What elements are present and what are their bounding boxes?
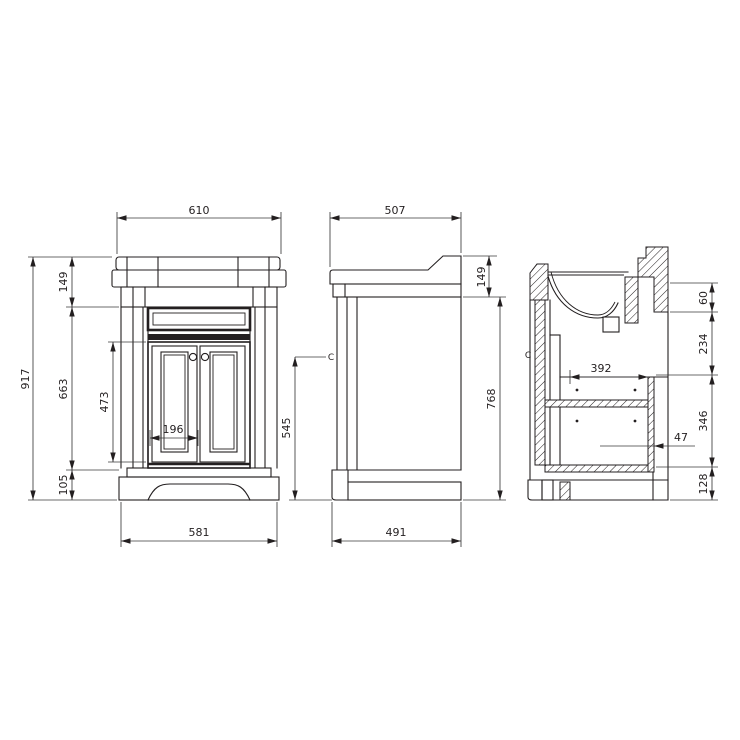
front-worktop — [112, 257, 286, 307]
dim-label-473: 473 — [98, 392, 111, 413]
front-view: 610 917 149 663 105 473 19 — [19, 204, 286, 547]
door-knob-right — [201, 353, 208, 360]
basin-front-rim — [530, 264, 548, 300]
side-centerline: C — [295, 353, 334, 363]
side-worktop — [330, 256, 461, 297]
dim-label-545: 545 — [280, 418, 293, 439]
dim-label-392: 392 — [591, 362, 612, 375]
front-worktop-molding — [112, 270, 286, 287]
front-door-panel-right — [210, 352, 237, 452]
dim-side-worktop: 149 — [463, 256, 506, 297]
front-plinth-arch — [148, 484, 250, 500]
dim-side-centerline-height: 545 — [280, 357, 332, 500]
section-view: C 392 47 60 234 346 128 — [525, 247, 718, 500]
front-worktop-apron — [121, 287, 277, 307]
dim-section-interior-width: 392 — [570, 362, 648, 384]
side-body — [337, 297, 461, 470]
dim-label-581: 581 — [189, 526, 210, 539]
dim-label-149-side: 149 — [475, 267, 488, 288]
section-centerline-label: C — [525, 351, 531, 361]
door-knob-left — [189, 353, 196, 360]
dim-label-768: 768 — [485, 389, 498, 410]
dim-label-149-front: 149 — [57, 272, 70, 293]
dim-label-60: 60 — [697, 291, 710, 305]
section-shelf-top — [545, 400, 648, 407]
dim-label-234: 234 — [697, 334, 710, 355]
front-worktop-slab — [116, 257, 280, 270]
dim-label-196: 196 — [163, 423, 184, 436]
dim-label-917: 917 — [19, 369, 32, 390]
dim-label-346: 346 — [697, 411, 710, 432]
dim-section-chain: 60 234 346 128 — [656, 283, 718, 500]
dim-front-door-panel: 196 — [150, 423, 198, 446]
side-view: C 507 149 768 545 491 — [280, 204, 506, 547]
front-door-left — [152, 346, 197, 462]
section-plinth-board — [560, 482, 570, 500]
vanity-technical-drawing: 610 917 149 663 105 473 19 — [0, 0, 740, 740]
fixing-dot — [576, 389, 579, 392]
section-basin — [530, 247, 668, 332]
dim-label-105: 105 — [57, 475, 70, 496]
dim-label-491: 491 — [386, 526, 407, 539]
dim-label-663: 663 — [57, 379, 70, 400]
dim-front-doors: 473 — [98, 342, 146, 462]
front-door-panel-left — [161, 352, 188, 452]
drawing-canvas: 610 917 149 663 105 473 19 — [0, 0, 740, 740]
front-drawer — [148, 308, 250, 340]
front-drawer-panel — [153, 313, 245, 325]
dim-label-47: 47 — [674, 431, 688, 444]
basin-tap-deck-upstand — [638, 247, 668, 312]
front-plinth-base — [119, 477, 279, 500]
side-worktop-molding — [333, 284, 461, 297]
front-door-frame — [148, 342, 250, 468]
section-shelf-bottom — [545, 465, 648, 472]
dim-label-128: 128 — [697, 474, 710, 495]
side-plinth-foot — [332, 470, 348, 500]
fixing-dot — [576, 420, 579, 423]
side-centerline-label: C — [328, 353, 334, 363]
fixing-dot — [634, 389, 637, 392]
section-carcass — [530, 300, 668, 500]
section-plinth-foot — [528, 480, 542, 500]
dim-front-width-top: 610 — [117, 204, 281, 254]
front-plinth — [119, 468, 279, 500]
section-centerline: C — [525, 351, 531, 361]
front-door-right — [200, 346, 245, 462]
fixing-dot — [634, 420, 637, 423]
front-mid-rail — [148, 334, 250, 340]
section-plinth — [528, 472, 668, 500]
basin-waste-outlet — [603, 317, 619, 332]
section-back-panel — [648, 377, 654, 472]
dim-front-chain: 149 663 105 — [57, 257, 119, 500]
side-worktop-slab — [330, 256, 461, 284]
dim-side-depth-base: 491 — [332, 502, 461, 547]
dim-side-body: 768 — [463, 297, 506, 500]
side-plinth-base — [348, 482, 461, 500]
basin-back-wall — [625, 277, 638, 323]
side-plinth — [332, 470, 461, 500]
dim-label-507: 507 — [385, 204, 406, 217]
dim-front-width-base: 581 — [121, 502, 277, 547]
dim-label-610: 610 — [189, 204, 210, 217]
section-front-frame — [535, 300, 545, 465]
front-doors — [148, 342, 250, 468]
front-drawer-frame — [148, 308, 250, 330]
front-plinth-band — [127, 468, 271, 477]
